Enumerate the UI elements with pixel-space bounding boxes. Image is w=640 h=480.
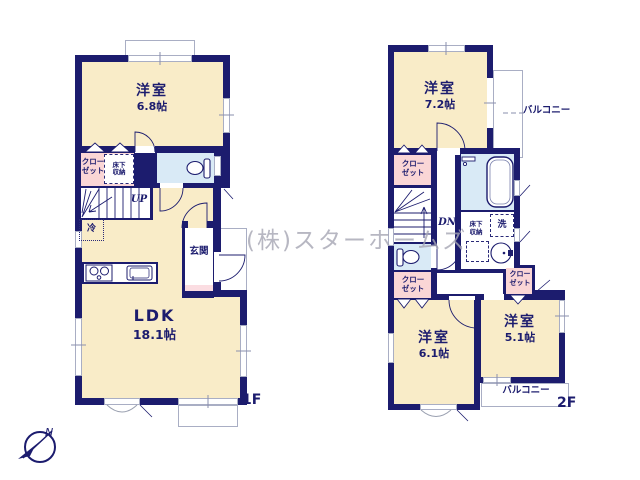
kitchen-counter <box>82 262 158 284</box>
closet-2f-right-line2: ゼット <box>507 279 533 288</box>
door-gap-2f-balcony-right <box>487 78 493 128</box>
bay-window-outline-1f-top <box>125 40 195 56</box>
room-label-2f-bedroom2: 洋室 <box>394 330 474 346</box>
door-gap-2f-bedroom2 <box>449 296 475 300</box>
underfloor-storage-2f-box <box>466 241 489 262</box>
window-1f-toilet-right <box>214 156 221 176</box>
compass-icon: N <box>18 426 55 462</box>
closet-label-2f-right: クロー ゼット <box>507 270 533 288</box>
entrance-step <box>185 285 213 291</box>
window-2f-bath-right <box>514 180 520 196</box>
company-watermark: (株)スターホームズ <box>246 221 467 255</box>
closet-1f-line1: クロー <box>80 157 106 166</box>
room-size-2f-bedroom2: 6.1帖 <box>394 348 474 361</box>
room-size-ldk: 18.1帖 <box>107 328 202 342</box>
room-label-2f-bedroom3: 洋室 <box>480 314 560 330</box>
door-gap-2f-bedroom3 <box>484 294 504 300</box>
window-1f-bottom-a <box>104 398 140 405</box>
refrigerator-label: 冷 <box>87 225 96 235</box>
room-2f-corridor <box>437 273 503 294</box>
laundry-label: 洗 <box>497 221 506 231</box>
window-1f-bedroom-top <box>128 55 192 62</box>
room-label-ldk: LDK <box>107 307 202 325</box>
room-2f-bath <box>461 154 514 210</box>
entrance-label: 玄関 <box>185 247 213 258</box>
window-2f-bedroom1-top <box>428 45 465 52</box>
door-gap-1f-front-door <box>214 252 221 282</box>
stairs-label-up: UP <box>126 194 152 206</box>
door-gap-1f-bedroom <box>135 146 155 153</box>
door-gap-1f-toilet <box>160 183 183 188</box>
window-1f-bottom-b <box>178 398 238 405</box>
closet-label-1f: クロー ゼット <box>80 157 106 176</box>
wall-genkan-bottom <box>182 291 214 298</box>
room-1f-toilet <box>157 153 214 183</box>
underfloor-storage-1f-line2: 収納 <box>113 169 126 176</box>
window-1f-bedroom-right <box>223 98 230 133</box>
wall-genkan-top-b <box>207 221 214 228</box>
closet-1f-line2: ゼット <box>80 166 106 175</box>
closet-2f-top-line2: ゼット <box>396 168 430 177</box>
window-2f-bedroom2-bottom <box>420 404 457 410</box>
closet-label-2f-top: クロー ゼット <box>396 159 430 178</box>
room-label-1f-bedroom: 洋室 <box>112 83 192 99</box>
window-2f-washroom-right <box>514 228 520 242</box>
closet-2f-left-line1: クロー <box>396 275 430 284</box>
balcony-right-label: バルコニー <box>523 106 575 117</box>
floorplan-canvas: 床下 収納 冷 洗 床下 収納 洋室 6.8帖 クロー ゼット UP LDK 1… <box>0 0 640 480</box>
underfloor-storage-1f: 床下 収納 <box>104 154 134 184</box>
room-1f-ldk-right <box>213 297 240 398</box>
room-size-2f-bedroom1: 7.2帖 <box>400 99 480 112</box>
window-2f-bedroom3-balcony-door <box>483 377 511 383</box>
room-label-2f-bedroom1: 洋室 <box>400 81 480 97</box>
window-1f-ldk-left <box>75 318 82 376</box>
floor-label-2f: 2F <box>557 395 587 411</box>
laundry-box-2f: 洗 <box>490 214 514 237</box>
closet-label-2f-left: クロー ゼット <box>396 275 430 294</box>
balcony-bottom-label: バルコニー <box>484 386 568 397</box>
compass-north-label: N <box>45 426 53 439</box>
bay-window-outline-1f-bottom <box>178 405 238 427</box>
refrigerator-box: 冷 <box>79 219 104 241</box>
room-size-1f-bedroom: 6.8帖 <box>112 101 192 114</box>
door-gap-2f-bedroom1 <box>437 148 460 155</box>
closet-2f-top-line1: クロー <box>396 159 430 168</box>
floor-label-1f: 1F <box>242 392 272 408</box>
room-size-2f-bedroom3: 5.1帖 <box>480 332 560 345</box>
balcony-right-outline <box>493 70 523 158</box>
closet-2f-left-line2: ゼット <box>396 284 430 293</box>
wall-genkan-top-a <box>182 221 188 228</box>
closet-2f-right-line1: クロー <box>507 270 533 279</box>
window-1f-ldk-right <box>240 325 247 377</box>
